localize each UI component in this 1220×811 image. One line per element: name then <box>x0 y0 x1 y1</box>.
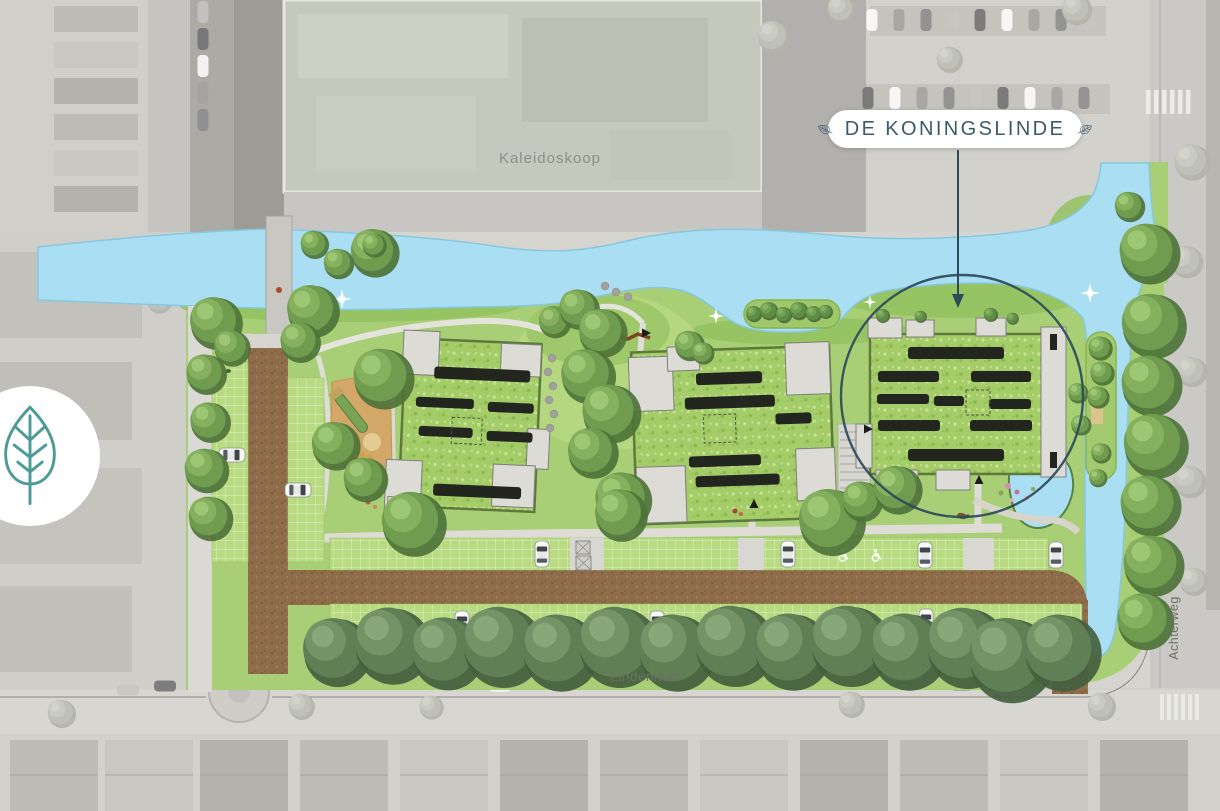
car <box>198 1 209 23</box>
building-volume <box>785 342 831 396</box>
car <box>198 28 209 50</box>
car <box>918 542 932 568</box>
car <box>1002 9 1013 31</box>
car <box>998 87 1009 109</box>
solar-panel <box>488 402 534 414</box>
car <box>1029 9 1040 31</box>
car <box>198 82 209 104</box>
waste-containers <box>576 541 591 570</box>
car <box>535 541 549 567</box>
solar-panel <box>934 396 964 406</box>
solar-panel <box>908 347 1004 359</box>
car <box>948 9 959 31</box>
car <box>198 109 209 131</box>
car <box>917 87 928 109</box>
linden-leaf-icon <box>811 114 837 144</box>
car <box>198 55 209 77</box>
car <box>975 9 986 31</box>
building-label-kaleidoskoop: Kaleidoskoop <box>430 150 670 167</box>
building-volume <box>491 464 535 508</box>
linden-leaf-icon <box>1073 114 1099 144</box>
car <box>863 87 874 109</box>
solar-panel <box>877 394 929 404</box>
car <box>867 9 878 31</box>
car <box>944 87 955 109</box>
car <box>971 87 982 109</box>
solar-panel <box>989 399 1031 409</box>
car <box>921 9 932 31</box>
apartment-building-koningslinde <box>856 318 1066 492</box>
solar-panel <box>908 449 1004 461</box>
apartment-building-2 <box>628 342 837 525</box>
car <box>894 9 905 31</box>
solar-panel <box>970 420 1032 431</box>
car <box>117 685 139 696</box>
solar-panel <box>878 420 940 431</box>
street-label-lindenlaan: Lindenlaan <box>576 669 716 684</box>
street-label-achterweg: Achterweg <box>1144 598 1204 658</box>
apartment-building-1 <box>384 330 554 520</box>
site-plan: DE KONINGSLINDE Kaleidoskoop Lindenlaan … <box>0 0 1220 811</box>
car <box>781 541 795 567</box>
car <box>1052 87 1063 109</box>
car <box>1079 87 1090 109</box>
solar-panel <box>878 371 939 382</box>
car <box>1025 87 1036 109</box>
bridge <box>266 216 292 340</box>
project-label: DE KONINGSLINDE <box>845 118 1065 141</box>
car <box>890 87 901 109</box>
car <box>285 483 311 497</box>
project-label-pill: DE KONINGSLINDE <box>828 110 1082 148</box>
solar-panel <box>696 371 762 385</box>
car <box>1049 542 1063 568</box>
building-volume <box>936 470 970 490</box>
car <box>154 681 176 692</box>
solar-panel <box>486 431 532 443</box>
solar-panel <box>971 371 1031 382</box>
linden-leaf-icon <box>0 400 73 512</box>
solar-panel <box>775 412 811 424</box>
